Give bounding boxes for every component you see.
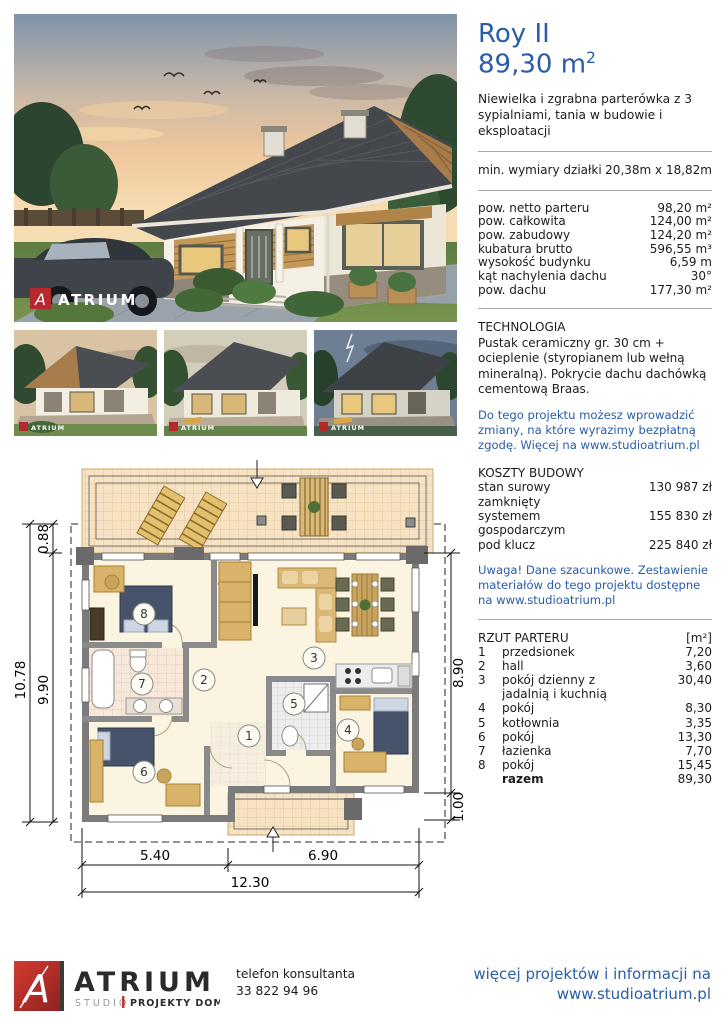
phone-block: telefon konsultanta 33 822 94 96: [236, 966, 355, 999]
svg-text:ATRIUM: ATRIUM: [31, 424, 65, 432]
website-link[interactable]: www.studioatrium.pl: [557, 985, 711, 1003]
photo-watermark: A ATRIUM: [30, 288, 138, 309]
brochure-page: A ATRIUM: [0, 0, 725, 1024]
cabinet: [340, 696, 370, 710]
svg-text:8.90: 8.90: [451, 658, 466, 688]
phone-number: 33 822 94 96: [236, 983, 355, 1000]
svg-text:3: 3: [310, 651, 318, 665]
technology-heading: TECHNOLOGIA: [478, 320, 712, 336]
svg-text:A: A: [21, 967, 50, 1011]
info-column: Roy II 89,30 m2 Niewielka i zgrabna part…: [478, 16, 712, 786]
svg-text:ATRIUM: ATRIUM: [58, 291, 138, 309]
room-number-5: 5: [283, 693, 305, 715]
wardrobe: [90, 608, 104, 640]
desk: [166, 784, 200, 806]
desk: [344, 752, 386, 772]
room-number-6: 6: [133, 761, 155, 783]
costs-heading: KOSZTY BUDOWY: [478, 466, 712, 480]
chimney: [261, 126, 287, 156]
thumbnail-photo-2: ATRIUM: [164, 330, 307, 436]
phone-label: telefon konsultanta: [236, 966, 355, 983]
svg-text:2: 2: [200, 673, 208, 687]
divider: [478, 151, 712, 152]
svg-text:6: 6: [140, 765, 148, 779]
spec-row: pow. netto parteru98,20 m²: [478, 202, 712, 216]
svg-text:7: 7: [138, 677, 146, 691]
floor-plan-drawing: 1 2 3 4 5 6 7 8: [14, 440, 466, 910]
entry-porch: [228, 793, 362, 852]
thumbnail-photo-1: ATRIUM: [14, 330, 157, 436]
room-number-7: 7: [131, 673, 153, 695]
cost-row: pod klucz225 840 zł: [478, 538, 712, 552]
svg-text:0.88: 0.88: [36, 524, 52, 554]
costs-section: KOSZTY BUDOWY stan surowy zamknięty130 9…: [478, 466, 712, 552]
photo-watermark: ATRIUM: [19, 422, 65, 432]
wardrobe: [90, 740, 103, 802]
bathtub: [92, 650, 114, 708]
legend-total-label: razem: [502, 772, 614, 786]
cost-row: stan surowy zamknięty130 987 zł: [478, 480, 712, 509]
planter: [406, 518, 415, 527]
porch-column: [276, 224, 283, 282]
logo-mark: A: [14, 961, 64, 1011]
tv: [253, 574, 258, 626]
thumbnail-photo-3: ATRIUM: [314, 330, 457, 436]
svg-text:4: 4: [344, 723, 352, 737]
logo-tagline: PROJEKTY DOMÓW: [130, 997, 220, 1009]
svg-text:ATRIUM: ATRIUM: [181, 424, 215, 432]
project-area: 89,30 m2: [478, 50, 712, 81]
side-window: [286, 228, 310, 252]
technology-text: Pustak ceramiczny gr. 30 cm + ocieplenie…: [478, 336, 712, 397]
spec-row: pow. całkowita124,00 m²: [478, 215, 712, 229]
footer: A ATRIUM STUDIO PROJEKTY DOMÓW telefon k…: [14, 958, 711, 1014]
svg-text:5.40: 5.40: [140, 848, 170, 864]
svg-text:1: 1: [245, 729, 253, 743]
svg-text:10.78: 10.78: [14, 661, 29, 700]
project-title: Roy II 89,30 m2: [478, 16, 712, 80]
spec-table: pow. netto parteru98,20 m² pow. całkowit…: [478, 202, 712, 298]
planter: [257, 516, 266, 525]
svg-text:5: 5: [290, 697, 298, 711]
spec-row: pow. zabudowy124,20 m²: [478, 229, 712, 243]
thumbnail-row: ATRIUM ATRIUM: [14, 330, 457, 436]
legend-heading: RZUT PARTERU: [478, 631, 654, 645]
kitchen-sink: [372, 668, 392, 683]
spec-row: kąt nachylenia dachu30°: [478, 270, 712, 284]
chimney: [341, 110, 369, 138]
svg-text:A: A: [34, 290, 46, 309]
logo-brand: ATRIUM: [74, 967, 215, 998]
cost-row: systemem gospodarczym155 830 zł: [478, 509, 712, 538]
svg-text:1.00: 1.00: [451, 792, 466, 822]
logo-studio: STUDIO: [75, 998, 129, 1009]
room-number-1: 1: [238, 725, 260, 747]
project-description: Niewielka i zgrabna parterówka z 3 sypia…: [478, 92, 712, 140]
legend-unit: [m²]: [656, 631, 712, 645]
floor-plan: 1 2 3 4 5 6 7 8: [14, 440, 457, 914]
svg-text:ATRIUM: ATRIUM: [331, 424, 365, 432]
atrium-logo: A ATRIUM STUDIO PROJEKTY DOMÓW: [14, 958, 220, 1014]
svg-text:9.90: 9.90: [36, 675, 52, 705]
legend-total-area: 89,30: [656, 772, 712, 786]
divider: [478, 308, 712, 309]
main-house-photo: A ATRIUM: [14, 14, 457, 322]
svg-text:6.90: 6.90: [308, 848, 338, 864]
svg-text:8: 8: [140, 607, 148, 621]
sink: [134, 700, 147, 713]
spec-row: wysokość budynku6,59 m: [478, 256, 712, 270]
coffee-table: [282, 608, 306, 625]
room-number-4: 4: [337, 719, 359, 741]
left-column: A ATRIUM: [14, 14, 457, 914]
estimate-note: Uwaga! Dane szacunkowe. Zestawienie mate…: [478, 563, 712, 607]
changes-note: Do tego projektu możesz wprowadzić zmian…: [478, 408, 712, 452]
photo-watermark: ATRIUM: [169, 422, 215, 432]
divider: [478, 190, 712, 191]
room-legend: RZUT PARTERU [m²] 1przedsionek7,20 2hall…: [478, 631, 712, 787]
svg-text:12.30: 12.30: [231, 875, 270, 891]
cabinet: [219, 562, 251, 640]
room-number-2: 2: [193, 669, 215, 691]
website-block: więcej projektów i informacji na www.stu…: [473, 964, 711, 1005]
spec-row: pow. dachu177,30 m²: [478, 284, 712, 298]
room-number-8: 8: [133, 603, 155, 625]
photo-watermark: ATRIUM: [319, 422, 365, 432]
room-number-3: 3: [303, 647, 325, 669]
spec-row: kubatura brutto596,55 m³: [478, 243, 712, 257]
sink: [160, 700, 173, 713]
divider: [478, 619, 712, 620]
more-info-text: więcej projektów i informacji na: [473, 964, 711, 984]
project-name: Roy II: [478, 20, 712, 50]
plot-size-row: min. wymiary działki20,38m x 18,82m: [478, 163, 712, 179]
